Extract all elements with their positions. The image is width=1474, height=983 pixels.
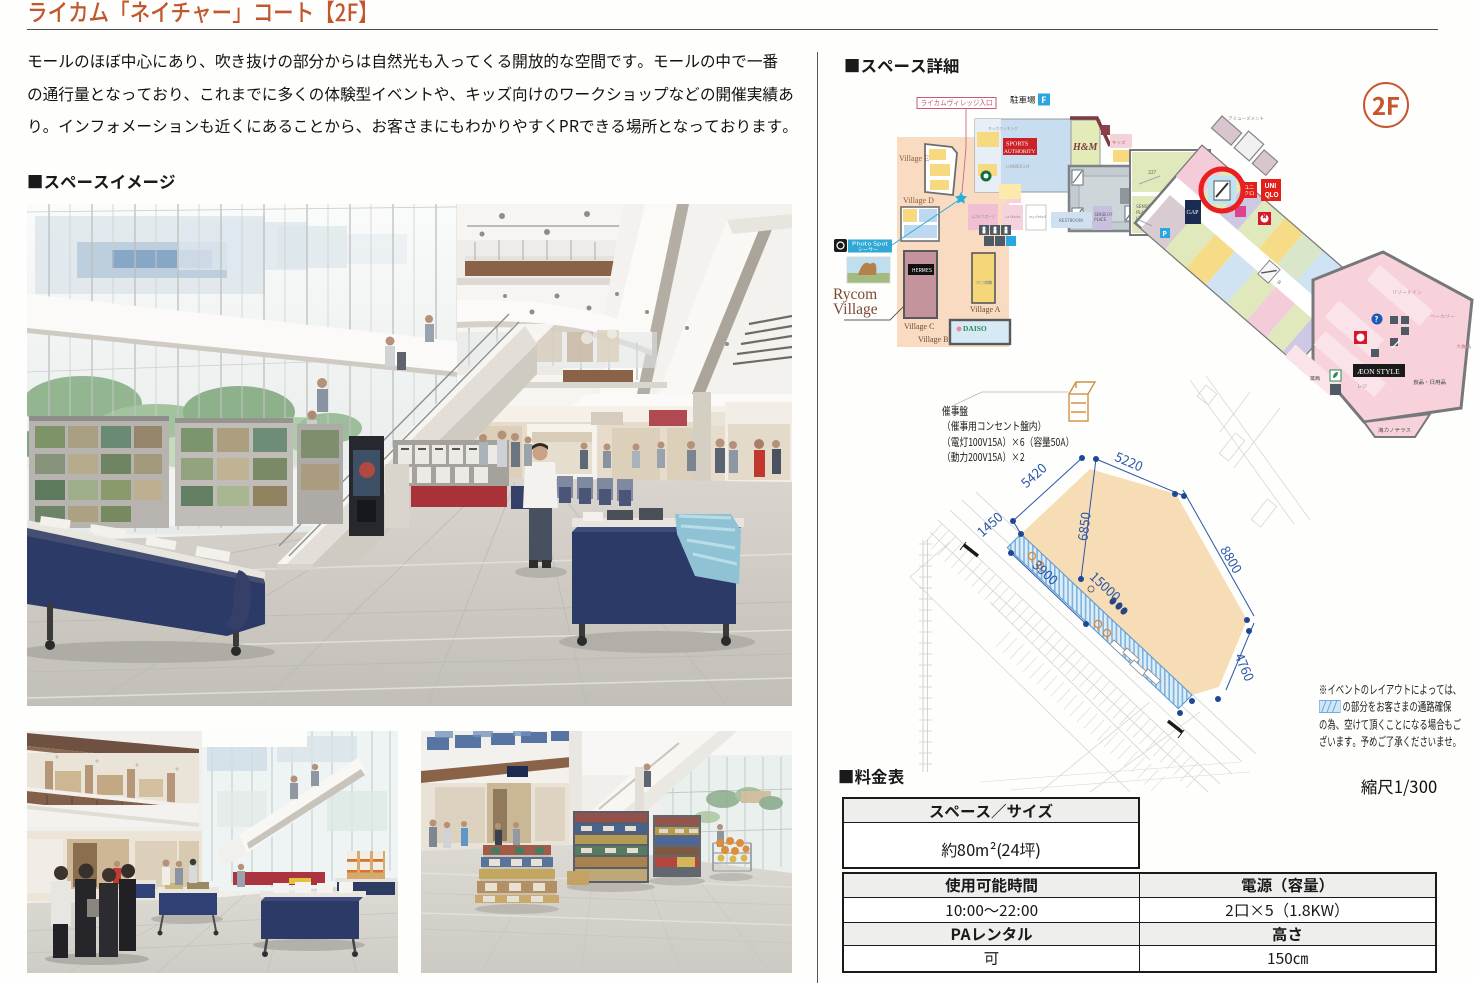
svg-text:4760: 4760 xyxy=(1231,650,1260,684)
svg-text:Village A: Village A xyxy=(970,305,1001,314)
svg-text:ライカムヴィレッジ入口: ライカムヴィレッジ入口 xyxy=(921,98,993,109)
svg-text:Village B: Village B xyxy=(918,335,948,344)
svg-text:my detail: my detail xyxy=(1029,215,1046,220)
svg-text:RESTROOM: RESTROOM xyxy=(1059,218,1083,224)
svg-text:ベーカリー: ベーカリー xyxy=(1430,313,1455,320)
svg-text:PLACE: PLACE xyxy=(1094,217,1106,223)
svg-text:AUTHORITY: AUTHORITY xyxy=(1004,149,1036,155)
svg-text:駐車場: 駐車場 xyxy=(1009,94,1036,106)
svg-text:DAISO: DAISO xyxy=(963,324,987,333)
svg-text:LUMBER 314: LUMBER 314 xyxy=(1006,164,1030,170)
svg-text:Village C: Village C xyxy=(904,322,934,331)
svg-text:Village D: Village D xyxy=(903,196,934,205)
svg-text:キッズ: キッズ xyxy=(1112,140,1126,146)
svg-text:8800: 8800 xyxy=(1216,542,1247,577)
svg-text:HERMES: HERMES xyxy=(912,267,933,274)
svg-text:La Matta: La Matta xyxy=(1005,215,1020,220)
svg-text:づくり体験: づくり体験 xyxy=(975,280,992,286)
svg-text:F: F xyxy=(1041,93,1046,106)
svg-text:SPORTS: SPORTS xyxy=(1006,141,1029,148)
svg-text:5220: 5220 xyxy=(1111,446,1146,475)
svg-text:クロ: クロ xyxy=(1244,190,1254,197)
svg-text:QLO: QLO xyxy=(1265,189,1279,199)
svg-text:ムスビ スポーツ: ムスビ スポーツ xyxy=(971,214,995,220)
svg-text:GAP: GAP xyxy=(1187,210,1200,216)
svg-text:227: 227 xyxy=(1148,169,1157,176)
svg-text:H&M: H&M xyxy=(1072,142,1099,153)
svg-text:?: ? xyxy=(1374,314,1379,325)
svg-text:大食品: 大食品 xyxy=(1456,343,1471,350)
svg-text:アミューズメント: アミューズメント xyxy=(1228,116,1264,122)
svg-text:P: P xyxy=(1163,229,1168,239)
svg-text:Village E: Village E xyxy=(899,154,929,163)
svg-text:Village: Village xyxy=(833,301,878,318)
svg-text:キッズクッキング: キッズクッキング xyxy=(988,126,1018,132)
svg-text:シーサー: シーサー xyxy=(858,246,878,253)
svg-text:リゾートイン: リゾートイン xyxy=(1392,289,1422,296)
svg-text:6850: 6850 xyxy=(1072,511,1094,542)
